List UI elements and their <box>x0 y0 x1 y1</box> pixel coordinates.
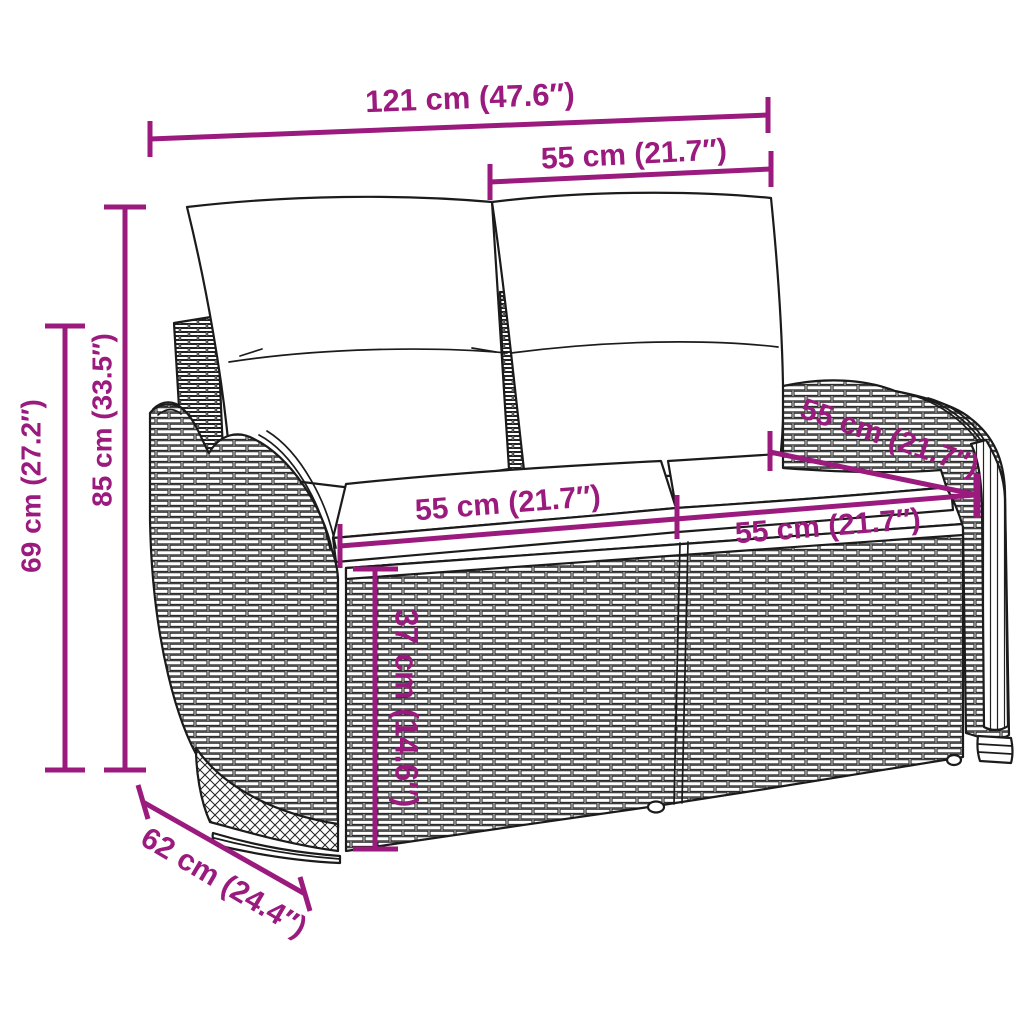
front-foot-nub-right <box>947 755 961 765</box>
product-dimension-diagram: 121 cm (47.6″) 55 cm (21.7″) 85 cm (33.5… <box>0 0 1024 1024</box>
dimension-back-height: 85 cm (33.5″) <box>86 207 146 770</box>
dimension-label-arm-height: 69 cm (27.2″) <box>15 399 46 573</box>
back-cushion-right <box>492 193 783 476</box>
right-foot <box>977 736 1012 763</box>
dimension-label-seat-height: 37 cm (14.6″) <box>389 609 425 808</box>
dimension-label-overall-width: 121 cm (47.6″) <box>365 76 576 119</box>
dimension-arm-height: 69 cm (27.2″) <box>15 326 85 770</box>
dimension-backrest-width: 55 cm (21.7″) <box>490 133 771 200</box>
bench-dimension-figure: 121 cm (47.6″) 55 cm (21.7″) 85 cm (33.5… <box>0 0 1024 1024</box>
dimension-label-backrest-width: 55 cm (21.7″) <box>540 133 728 176</box>
front-foot-nub-center <box>648 802 664 813</box>
dimension-label-back-height: 85 cm (33.5″) <box>86 333 117 507</box>
